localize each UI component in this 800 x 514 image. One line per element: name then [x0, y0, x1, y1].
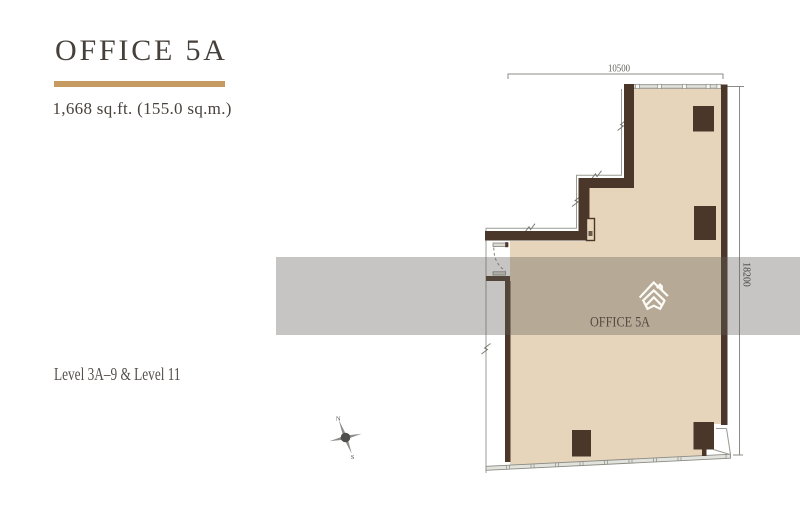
svg-text:S: S [351, 454, 355, 461]
svg-text:10500: 10500 [608, 64, 630, 75]
svg-text:N: N [336, 416, 341, 423]
svg-text:OFFICE 5A: OFFICE 5A [590, 315, 650, 331]
